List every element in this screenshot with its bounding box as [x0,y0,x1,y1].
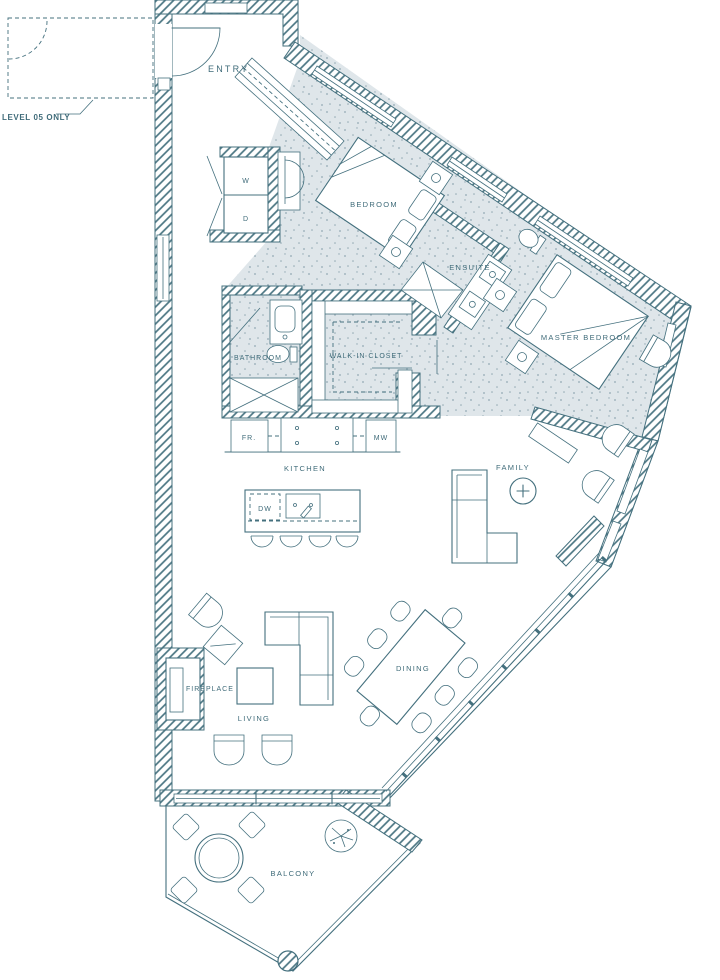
dining-chair [388,598,413,624]
balcony-column [278,951,298,971]
wic-counter-return [398,370,412,413]
entry-label: ENTRY [208,64,249,74]
dryer-label: D [243,216,249,223]
bedroom-label: BEDROOM [350,200,398,209]
coffee-table [237,668,273,704]
fireplace-label: FIREPLACE [186,686,234,693]
entry-door-stop [158,78,170,90]
dishwasher-label: DW [258,506,272,513]
living-armchair-2 [262,735,292,765]
bathroom-label: BATHROOM [234,355,282,362]
fridge-label: FR. [242,435,256,442]
balcony-table [195,834,243,882]
living-armchair-1 [214,735,244,765]
island-stools [251,536,358,547]
balcony-label: BALCONY [271,869,316,878]
kitchen-area: FR. MW DW [225,418,400,547]
kitchen-island: DW [245,490,360,532]
wall-bath-left [222,286,230,416]
floor-plan-page: LEVEL 05 ONLY W D [0,0,720,980]
level05-leader-line [56,100,93,114]
bathroom-shower [230,378,298,412]
wic-counter-bottom [312,400,404,413]
wall-bath-top [222,286,302,295]
dining-chair [409,710,434,736]
ensuite-label: ENSUITE [449,263,491,272]
balcony-plant [325,820,357,852]
living-window-band [174,793,382,804]
level05-door-swing [9,21,47,59]
entry-cabinet [278,152,304,210]
level05-annotation: LEVEL 05 ONLY [2,18,153,122]
entry-door-opening [155,24,172,78]
balcony-chair [237,876,265,904]
wic-counter-left [312,301,325,413]
dining-chair [455,655,480,681]
floor-plan-drawing: LEVEL 05 ONLY W D [0,0,720,980]
wic-counter-top [312,301,412,314]
living-side-table [203,625,242,664]
balcony-chair [238,811,266,839]
laundry-closet: W D [207,156,268,236]
balcony-chair [172,813,200,841]
living-label: LIVING [238,714,270,723]
microwave-label: MW [374,435,388,442]
cooktop [281,418,353,452]
master-bedroom-label: MASTER BEDROOM [541,333,631,342]
walk-in-closet-label: WALK-IN CLOSET [330,353,403,360]
family-label: FAMILY [496,463,530,472]
family-chair-1 [577,465,614,503]
wall-wd-top [220,147,272,157]
balcony-area [170,811,357,971]
top-wall-niche [205,3,247,13]
dining-label: DINING [396,664,430,673]
wall-wic-top [300,290,418,301]
kitchen-label: KITCHEN [284,464,326,473]
dining-chair [342,653,367,679]
family-sofa [452,470,517,563]
laundry-bifold-doors [207,156,222,236]
dining-chair [432,682,457,708]
living-area [166,593,333,765]
level05-note: LEVEL 05 ONLY [2,113,70,122]
dining-chair [365,626,390,652]
balcony-chair [170,876,198,904]
level05-dashed-outline [8,18,153,98]
bathroom-vanity [270,300,302,344]
washer-label: W [242,178,250,185]
